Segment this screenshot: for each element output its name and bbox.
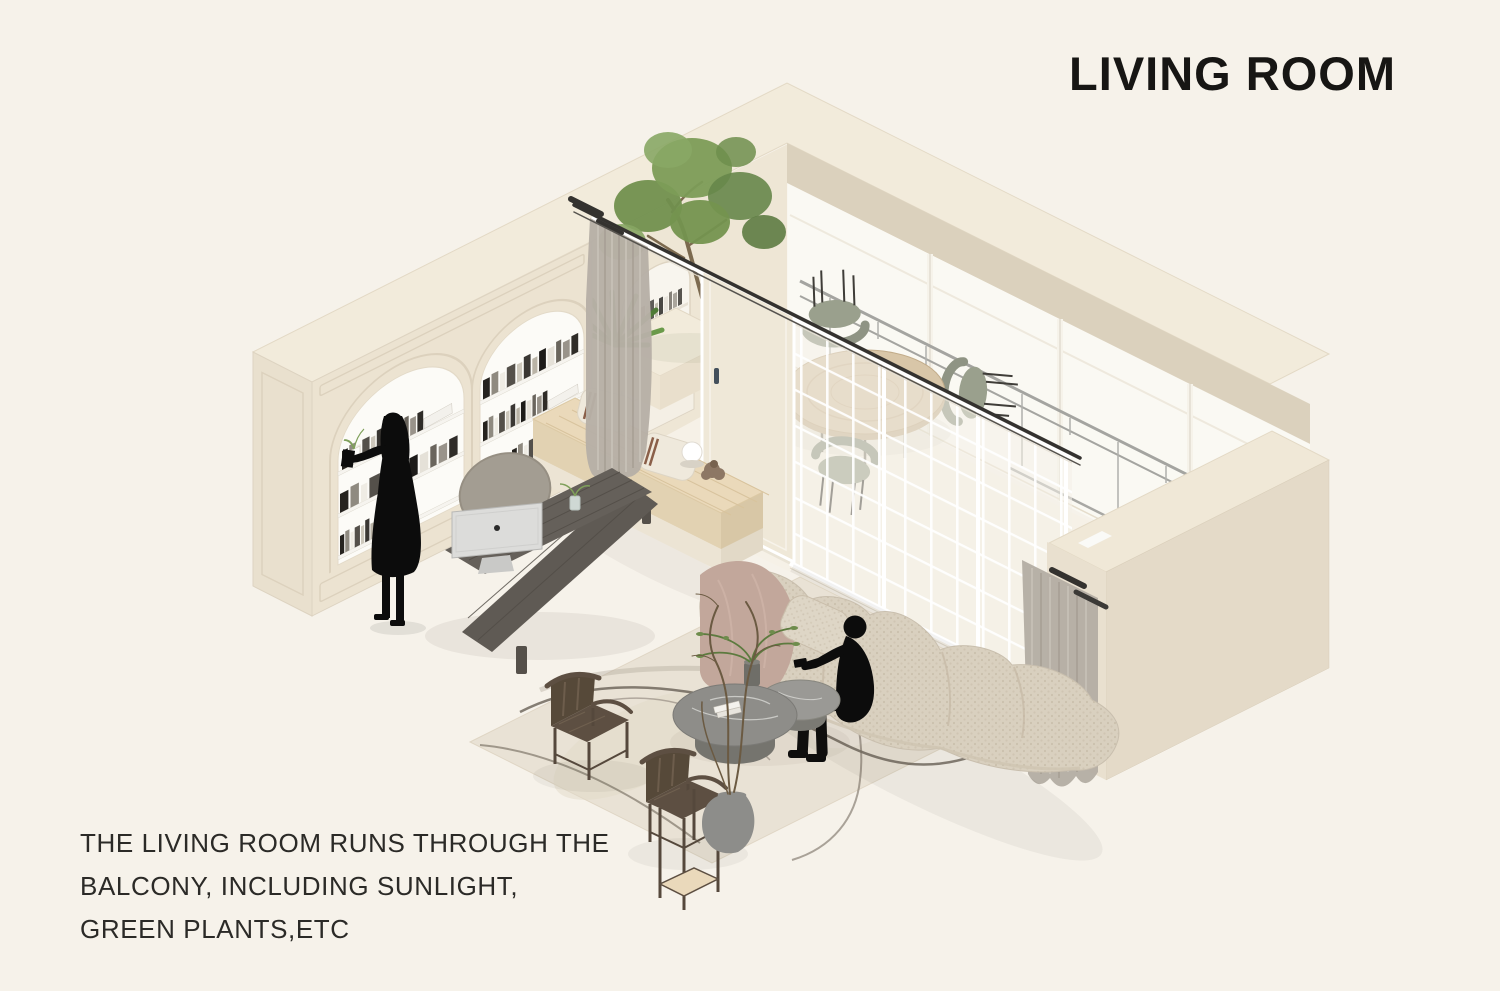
caption-line: BALCONY, INCLUDING SUNLIGHT, [80, 865, 610, 908]
page-title: LIVING ROOM [1069, 46, 1396, 101]
caption: THE LIVING ROOM RUNS THROUGH THE BALCONY… [80, 822, 610, 951]
imac [452, 503, 542, 574]
curtain-left [586, 218, 652, 480]
sphere-lamp [682, 442, 702, 462]
door-handle [714, 368, 719, 384]
caption-line: THE LIVING ROOM RUNS THROUGH THE [80, 822, 610, 865]
caption-line: GREEN PLANTS,ETC [80, 908, 610, 951]
apple-logo-icon [494, 525, 500, 531]
